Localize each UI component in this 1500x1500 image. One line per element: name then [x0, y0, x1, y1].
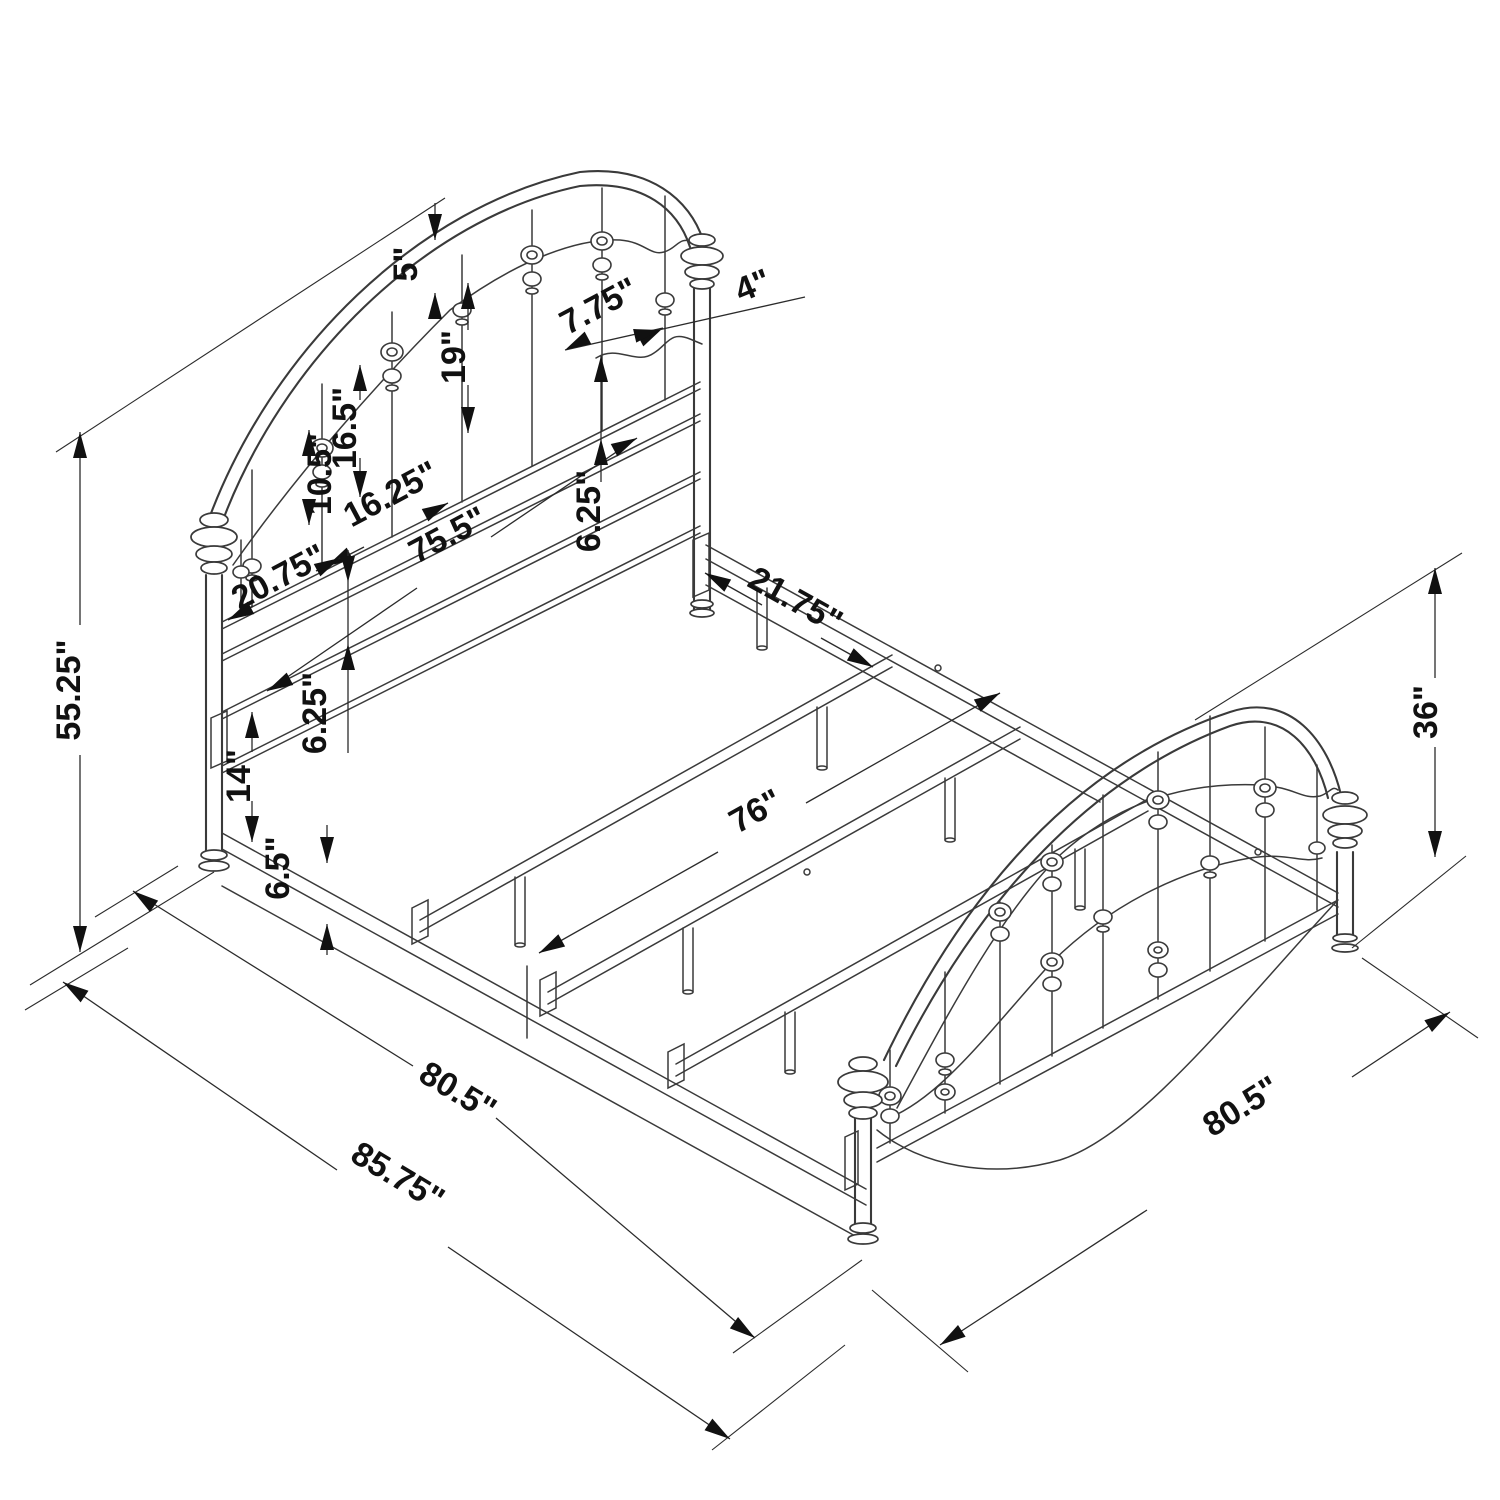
footboard-swoop-rail: [877, 902, 1336, 1169]
footboard-arch-inner: [896, 722, 1328, 1066]
footboard-far-post: [1337, 852, 1353, 938]
near-side-rail: [222, 833, 866, 1242]
footboard-bottom-rail: [877, 900, 1338, 1162]
dim-headboard-height: 55.25": [50, 639, 88, 740]
footboard-near-finial: [838, 1057, 888, 1119]
diagram-canvas: 55.25" 5" 19" 16.5" 10.5" 16.25" 75.5" 2…: [0, 0, 1500, 1500]
dim-rail-floor-clearance: 6.5": [259, 836, 297, 899]
bed-frame-dimension-diagram: 55.25" 5" 19" 16.5" 10.5" 16.25" 75.5" 2…: [0, 0, 1500, 1500]
dim-short-spindle: 10.5": [301, 433, 339, 515]
frame-rails: [222, 545, 1338, 1242]
dim-post-lower-section: 14": [220, 749, 258, 803]
dim-long-spindle: 19": [435, 330, 473, 384]
dim-post-spindle-gap: 4": [730, 262, 777, 310]
dim-footboard-height: 36": [1407, 685, 1445, 739]
dim-spindle-gap: 7.75": [554, 270, 645, 342]
footboard-far-finial: [1323, 792, 1367, 848]
dim-slat-spacing: 21.75": [742, 559, 849, 641]
dim-overall-length: 85.75": [345, 1134, 451, 1219]
dim-upper-bar-gap: 6.25": [570, 470, 608, 552]
slat-3: [668, 799, 1148, 1088]
headboard-far-post: [694, 282, 710, 610]
dim-footboard-width: 80.5": [1196, 1069, 1286, 1145]
headboard-near-finial: [191, 513, 237, 574]
footboard: [838, 707, 1367, 1244]
dim-lower-bar-gap: 6.25": [296, 672, 334, 754]
slat-1: [412, 655, 892, 947]
footboard-spindle-rail: [897, 785, 1338, 1108]
footboard-ornaments: [879, 779, 1325, 1123]
dim-arch-rail-gap: 5": [387, 246, 425, 281]
headboard-feet: [199, 600, 714, 871]
headboard-far-bracket: [693, 533, 709, 597]
dimension-labels: 55.25" 5" 19" 16.5" 10.5" 16.25" 75.5" 2…: [50, 246, 1445, 1218]
dim-frame-length: 80.5": [413, 1054, 503, 1129]
dim-slat-length: 76": [723, 782, 789, 841]
dim-headboard-inner-width: 75.5": [403, 499, 494, 571]
